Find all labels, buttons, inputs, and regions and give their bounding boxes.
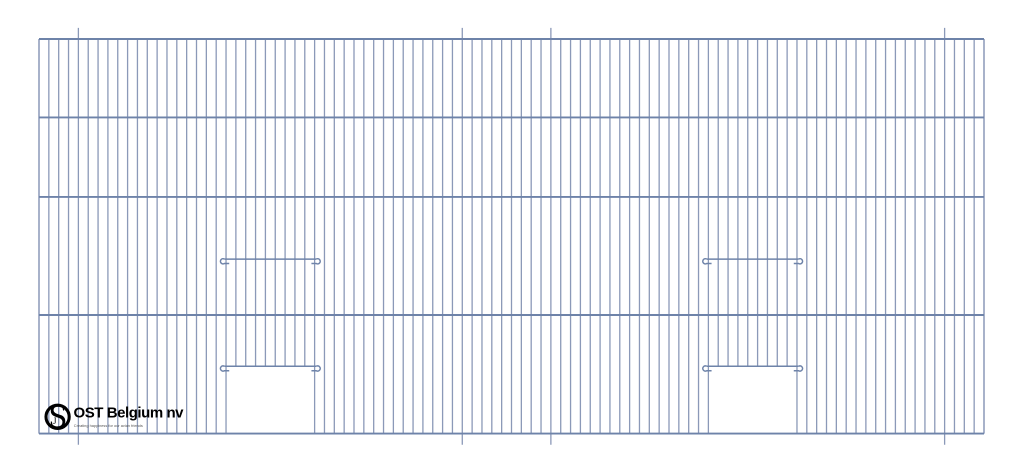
svg-text:Creating happiness for our avi: Creating happiness for our avian friends [74,423,143,428]
svg-text:S: S [49,399,68,436]
svg-text:J: J [53,416,57,426]
svg-text:OST Belgium nv: OST Belgium nv [74,405,185,422]
